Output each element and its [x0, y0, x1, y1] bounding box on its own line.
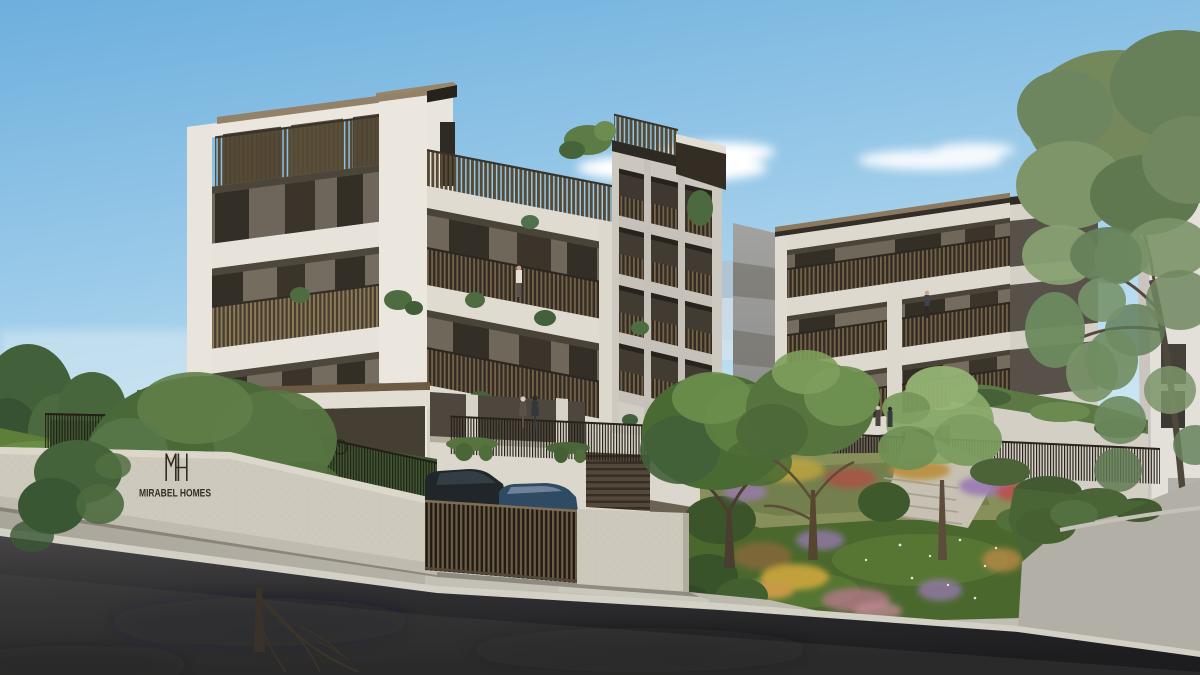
svg-text:MIRABEL HOMES: MIRABEL HOMES [139, 488, 211, 500]
